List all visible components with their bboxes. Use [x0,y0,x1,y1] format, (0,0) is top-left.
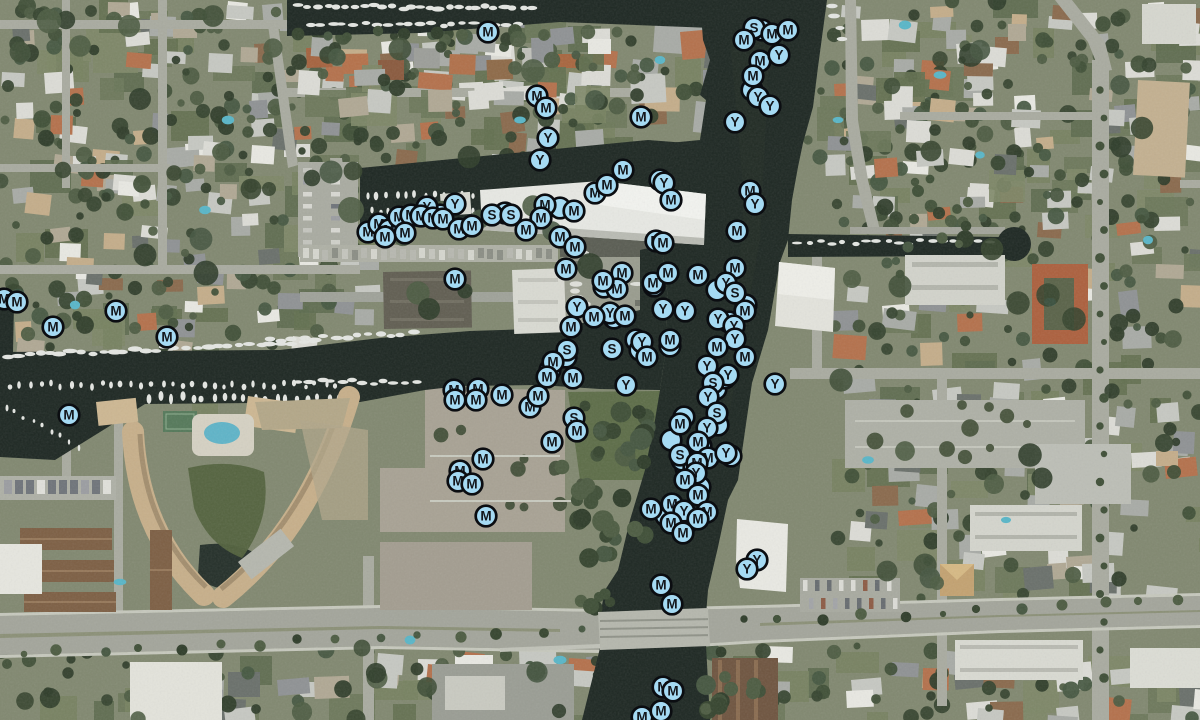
svg-text:M: M [437,212,448,227]
svg-text:M: M [645,502,656,517]
svg-text:M: M [655,578,666,593]
svg-text:M: M [449,272,460,287]
svg-text:M: M [554,230,565,245]
svg-text:Y: Y [572,300,581,315]
svg-text:M: M [692,512,703,527]
svg-text:M: M [731,224,742,239]
svg-text:M: M [482,25,493,40]
svg-text:M: M [541,370,552,385]
svg-text:M: M [110,304,121,319]
svg-text:M: M [665,193,676,208]
svg-text:Y: Y [765,99,774,114]
svg-text:M: M [662,266,673,281]
svg-text:S: S [562,343,571,358]
svg-text:M: M [747,69,758,84]
svg-text:M: M [379,230,390,245]
svg-text:M: M [617,163,628,178]
svg-text:Y: Y [742,562,751,577]
svg-text:M: M [674,417,685,432]
svg-text:M: M [597,274,608,289]
svg-text:M: M [477,452,488,467]
svg-text:Y: Y [535,153,544,168]
svg-text:M: M [567,371,578,386]
svg-text:Y: Y [702,359,711,374]
svg-text:M: M [535,211,546,226]
svg-text:S: S [730,286,739,301]
svg-text:M: M [692,488,703,503]
svg-text:M: M [47,320,58,335]
svg-text:M: M [63,408,74,423]
svg-text:M: M [571,424,582,439]
svg-text:Y: Y [730,332,739,347]
svg-text:Y: Y [621,378,630,393]
svg-text:M: M [739,350,750,365]
svg-text:M: M [520,223,531,238]
svg-text:M: M [635,110,646,125]
svg-text:S: S [487,208,496,223]
svg-text:M: M [560,262,571,277]
svg-text:M: M [569,240,580,255]
svg-text:M: M [540,101,551,116]
svg-text:M: M [601,178,612,193]
svg-text:Y: Y [703,390,712,405]
svg-text:M: M [636,710,647,720]
svg-text:S: S [675,448,684,463]
svg-text:M: M [568,204,579,219]
svg-text:M: M [647,276,658,291]
svg-text:M: M [641,350,652,365]
svg-text:M: M [496,388,507,403]
svg-text:Y: Y [658,302,667,317]
svg-text:Y: Y [680,304,689,319]
svg-text:Y: Y [770,377,779,392]
svg-text:Y: Y [774,48,783,63]
svg-text:Y: Y [713,312,722,327]
svg-text:M: M [711,340,722,355]
svg-text:M: M [532,389,543,404]
svg-text:M: M [470,393,481,408]
svg-text:M: M [466,477,477,492]
svg-text:M: M [738,33,749,48]
svg-text:S: S [712,406,721,421]
svg-text:M: M [399,226,410,241]
svg-text:Y: Y [721,446,730,461]
svg-text:M: M [588,310,599,325]
svg-text:M: M [480,509,491,524]
svg-text:S: S [607,342,616,357]
svg-text:Y: Y [750,197,759,212]
svg-text:M: M [619,309,630,324]
svg-text:M: M [466,219,477,234]
svg-text:M: M [161,330,172,345]
svg-text:Y: Y [450,197,459,212]
svg-text:M: M [565,320,576,335]
svg-text:M: M [782,23,793,38]
svg-text:M: M [677,526,688,541]
svg-text:M: M [655,704,666,719]
svg-text:M: M [11,295,22,310]
svg-text:M: M [449,393,460,408]
svg-text:Y: Y [605,306,614,321]
svg-text:M: M [666,597,677,612]
svg-text:Y: Y [723,368,732,383]
svg-text:Y: Y [659,176,668,191]
svg-text:M: M [657,236,668,251]
svg-text:M: M [679,473,690,488]
svg-text:M: M [667,684,678,699]
svg-text:M: M [692,435,703,450]
svg-text:S: S [506,208,515,223]
svg-text:M: M [739,304,750,319]
svg-text:Y: Y [730,115,739,130]
svg-text:Y: Y [543,131,552,146]
svg-text:M: M [546,435,557,450]
svg-text:M: M [664,333,675,348]
svg-text:M: M [692,268,703,283]
svg-text:M: M [766,27,777,42]
